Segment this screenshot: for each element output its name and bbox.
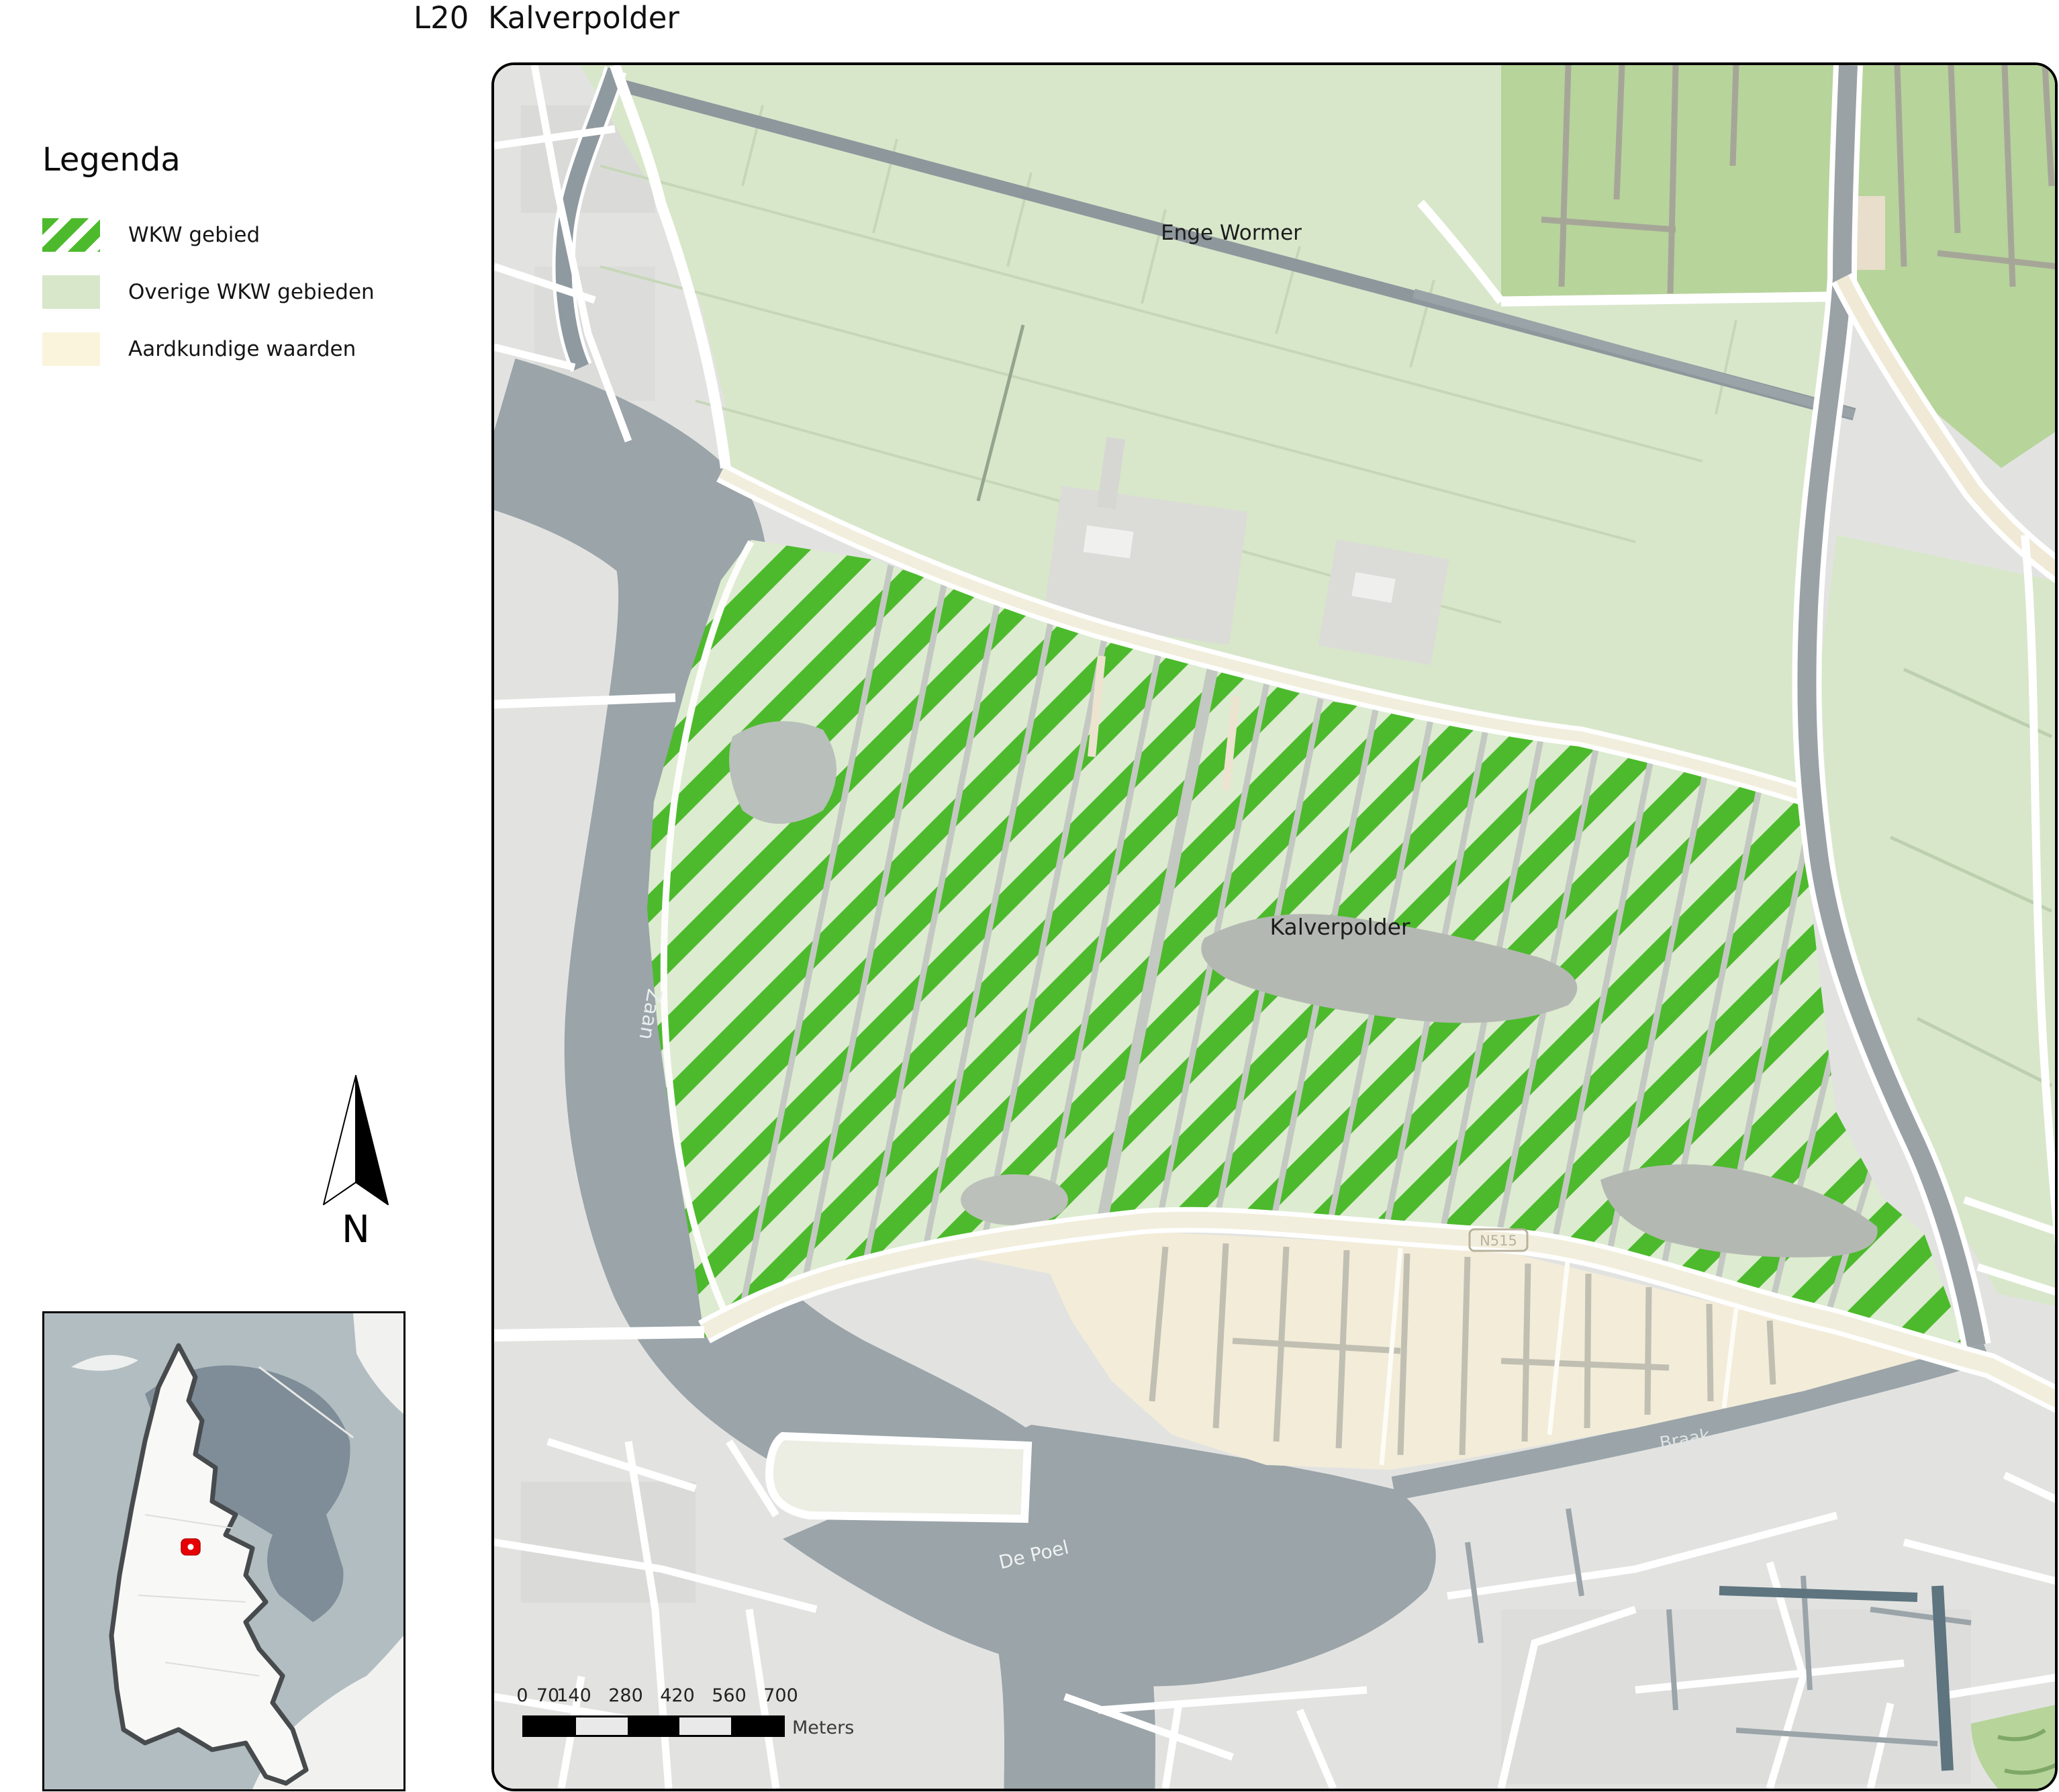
main-map-canvas: Enge Wormer Kalverpolder Zaan De Poel Br…: [491, 62, 2058, 1791]
north-label: N: [342, 1208, 370, 1252]
wkw-hatch-swatch-icon: [42, 218, 100, 252]
scale-unit-label: Meters: [792, 1717, 854, 1738]
scale-bar-segments: [522, 1715, 785, 1737]
road-zaan-bridge: [494, 1332, 704, 1335]
north-arrow-icon: N: [314, 1066, 397, 1254]
legend-item-label: Aardkundige waarden: [128, 337, 356, 361]
aardkundige-swatch-icon: [42, 332, 100, 366]
scale-tick: 700: [763, 1685, 798, 1706]
scale-tick: 0: [516, 1685, 528, 1706]
scale-tick: 280: [608, 1685, 643, 1706]
locator-inset-map: [42, 1311, 405, 1791]
page-title: L20 Kalverpolder: [414, 0, 679, 36]
legend-item-label: WKW gebied: [128, 223, 260, 247]
scale-tick: 140: [557, 1685, 591, 1706]
map-report-page: L20 Kalverpolder Legenda WKW gebied Over…: [0, 0, 2059, 1792]
legend-panel: Legenda WKW gebied Overige WKW gebieden …: [42, 141, 375, 389]
aardkundige-block-west: [769, 1436, 1028, 1519]
scale-tick: 420: [660, 1685, 695, 1706]
legend-item-overige: Overige WKW gebieden: [42, 275, 375, 310]
overige-wkw-swatch-icon: [42, 275, 100, 309]
label-enge-wormer: Enge Wormer: [1161, 221, 1302, 245]
legend-item-label: Overige WKW gebieden: [128, 280, 375, 304]
label-kalverpolder: Kalverpolder: [1270, 914, 1410, 940]
legend-item-wkw: WKW gebied: [42, 218, 375, 252]
scale-tick: 560: [712, 1685, 747, 1706]
scale-tick: 70: [536, 1685, 559, 1706]
svg-text:N515: N515: [1480, 1233, 1517, 1249]
inset-location-marker: [181, 1539, 200, 1555]
legend-item-aardkundig: Aardkundige waarden: [42, 332, 375, 367]
scale-bar: 0 70 140 280 420 560 700 Meters: [522, 1685, 838, 1746]
legend-heading: Legenda: [42, 141, 375, 179]
